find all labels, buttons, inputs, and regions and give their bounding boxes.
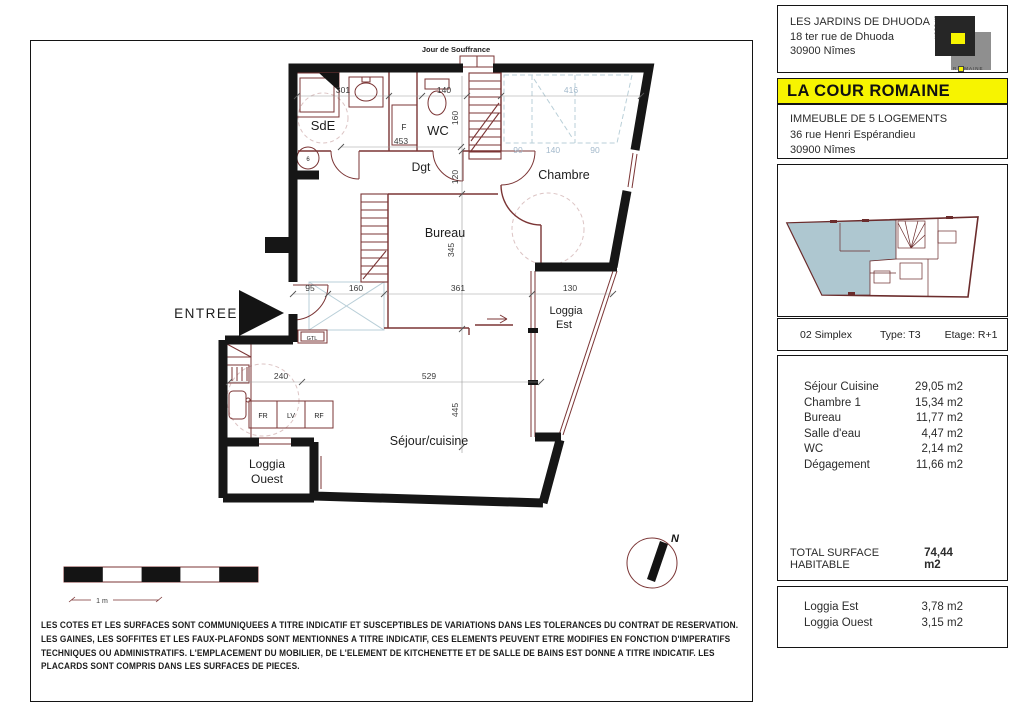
area-label: WC xyxy=(804,442,823,458)
room-label-dgt: Dgt xyxy=(412,160,431,174)
fixtures xyxy=(225,73,449,443)
logo-yellow-square xyxy=(951,33,965,44)
dim-453: 453 xyxy=(394,136,408,146)
kitchen-sink xyxy=(229,391,246,419)
dim-345: 345 xyxy=(446,243,456,257)
plan-sheet-page: 301 140 453 95 160 361 130 240 529 160 1… xyxy=(0,0,1024,724)
dim-361: 361 xyxy=(451,283,465,293)
dim-301: 301 xyxy=(336,85,350,95)
compass-n-label: N xyxy=(671,533,680,545)
room-label-loggia-est-1: Loggia xyxy=(549,305,583,317)
room-label-sde: SdE xyxy=(311,118,336,133)
unit-info-row: 02 Simplex Type: T3 Etage: R+1 xyxy=(777,318,1008,351)
area-label: Chambre 1 xyxy=(804,396,861,412)
area-value: 2,14 m2 xyxy=(921,442,963,458)
room-label-loggia-ouest-2: Ouest xyxy=(251,472,284,486)
label-rf: RF xyxy=(314,413,323,420)
area-label: Dégagement xyxy=(804,458,870,474)
disclaimer-text: LES COTES ET LES SURFACES SONT COMMUNIQU… xyxy=(41,619,742,674)
dim-90b: 90 xyxy=(590,145,600,155)
area-value: 29,05 m2 xyxy=(915,380,963,396)
loggia-value: 3,78 m2 xyxy=(921,600,963,616)
dim-140: 140 xyxy=(437,85,451,95)
area-value: 15,34 m2 xyxy=(915,396,963,412)
logo-bottom-r: R xyxy=(953,66,957,71)
building-line1: IMMEUBLE DE 5 LOGEMENTS xyxy=(790,112,1007,128)
building-line3: 30900 Nîmes xyxy=(790,143,1007,159)
north-compass: N xyxy=(627,533,680,588)
compass-needle-icon xyxy=(647,541,668,582)
area-row: Dégagement 11,66 m2 xyxy=(778,458,1007,474)
area-value: 11,66 m2 xyxy=(916,458,963,474)
area-row: Chambre 1 15,34 m2 xyxy=(778,396,1007,412)
dim-160: 160 xyxy=(450,111,460,125)
loggia-est-railing xyxy=(559,271,617,435)
label-heater: 6 xyxy=(306,157,310,163)
unit-floor: Etage: R+1 xyxy=(945,329,998,341)
loggia-label: Loggia Est xyxy=(804,600,858,616)
area-label: Séjour Cuisine xyxy=(804,380,879,396)
logo-o-square-icon xyxy=(958,66,964,72)
dim-445: 445 xyxy=(450,403,460,417)
areas-table-box: Séjour Cuisine 29,05 m2 Chambre 1 15,34 … xyxy=(777,355,1008,581)
area-row: WC 2,14 m2 xyxy=(778,442,1007,458)
room-label-loggia-est-2: Est xyxy=(556,319,572,331)
wall-pilaster xyxy=(265,237,291,253)
room-label-bureau: Bureau xyxy=(425,226,465,240)
label-lv: LV xyxy=(287,413,295,420)
total-surface-row: TOTAL SURFACE HABITABLE 74,44 m2 xyxy=(778,547,1007,571)
dim-160b: 160 xyxy=(349,283,363,293)
label-fr: FR xyxy=(258,413,267,420)
area-row: Salle d'eau 4,47 m2 xyxy=(778,427,1007,443)
entree: ENTREE xyxy=(174,290,284,336)
area-label: Salle d'eau xyxy=(804,427,861,443)
flow-arrow-icon xyxy=(487,315,507,323)
scale-label: 1 m xyxy=(96,598,108,605)
site-plan-box xyxy=(777,164,1008,317)
loggias-box: Loggia Est 3,78 m2 Loggia Ouest 3,15 m2 xyxy=(777,586,1008,648)
loggia-label: Loggia Ouest xyxy=(804,616,872,632)
entree-label: ENTREE xyxy=(174,306,238,321)
dim-95: 95 xyxy=(305,283,315,293)
unit-type: Type: T3 xyxy=(880,329,921,341)
hall-closet xyxy=(309,282,384,330)
loggia-value: 3,15 m2 xyxy=(921,616,963,632)
la-cour-romaine-logo: LA COUR RMAINE xyxy=(927,14,999,72)
site-plan-thumbnail xyxy=(778,191,991,331)
unit-number: 02 Simplex xyxy=(778,329,852,341)
dim-90a: 90 xyxy=(513,145,523,155)
building-line2: 36 rue Henri Espérandieu xyxy=(790,128,1007,144)
residence-title-banner: LA COUR ROMAINE xyxy=(777,78,1008,104)
area-value: 11,77 m2 xyxy=(916,411,963,427)
building-address-box: IMMEUBLE DE 5 LOGEMENTS 36 rue Henri Esp… xyxy=(777,104,1008,159)
room-label-wc: WC xyxy=(427,123,449,138)
area-value: 4,47 m2 xyxy=(921,427,963,443)
total-value: 74,44 m2 xyxy=(924,547,967,571)
entree-arrow-icon xyxy=(239,290,284,336)
label-f: F xyxy=(402,123,407,132)
loggia-row: Loggia Ouest 3,15 m2 xyxy=(778,616,1007,632)
label-gtl: GTL xyxy=(307,336,318,342)
area-row: Bureau 11,77 m2 xyxy=(778,411,1007,427)
area-label: Bureau xyxy=(804,411,841,427)
total-label: TOTAL SURFACE HABITABLE xyxy=(790,547,924,571)
dim-529: 529 xyxy=(422,371,436,381)
room-label-sejour: Séjour/cuisine xyxy=(390,434,469,448)
dim-240: 240 xyxy=(274,371,288,381)
room-label-loggia-ouest-1: Loggia xyxy=(249,457,285,471)
kitchen-counter xyxy=(225,343,251,443)
logo-bottom-maine: MAINE xyxy=(964,66,983,71)
floor-plan-frame: 301 140 453 95 160 361 130 240 529 160 1… xyxy=(30,40,753,702)
dim-416: 416 xyxy=(564,85,578,95)
jour-de-souffrance-label: Jour de Souffrance xyxy=(422,45,490,54)
stairs xyxy=(361,73,501,282)
loggia-row: Loggia Est 3,78 m2 xyxy=(778,600,1007,616)
scale-bar: 1 m xyxy=(64,567,258,605)
dim-120: 120 xyxy=(450,170,460,184)
dim-140b: 140 xyxy=(546,145,560,155)
area-row: Séjour Cuisine 29,05 m2 xyxy=(778,380,1007,396)
residence-name: LA COUR ROMAINE xyxy=(787,82,950,101)
room-label-chambre: Chambre xyxy=(538,168,589,182)
floor-plan-drawing: 301 140 453 95 160 361 130 240 529 160 1… xyxy=(31,41,754,616)
project-address-box: LES JARDINS DE DHUODA 18 ter rue de Dhuo… xyxy=(777,5,1008,73)
dim-130: 130 xyxy=(563,283,577,293)
logo-bottom-text: RMAINE xyxy=(953,62,984,77)
